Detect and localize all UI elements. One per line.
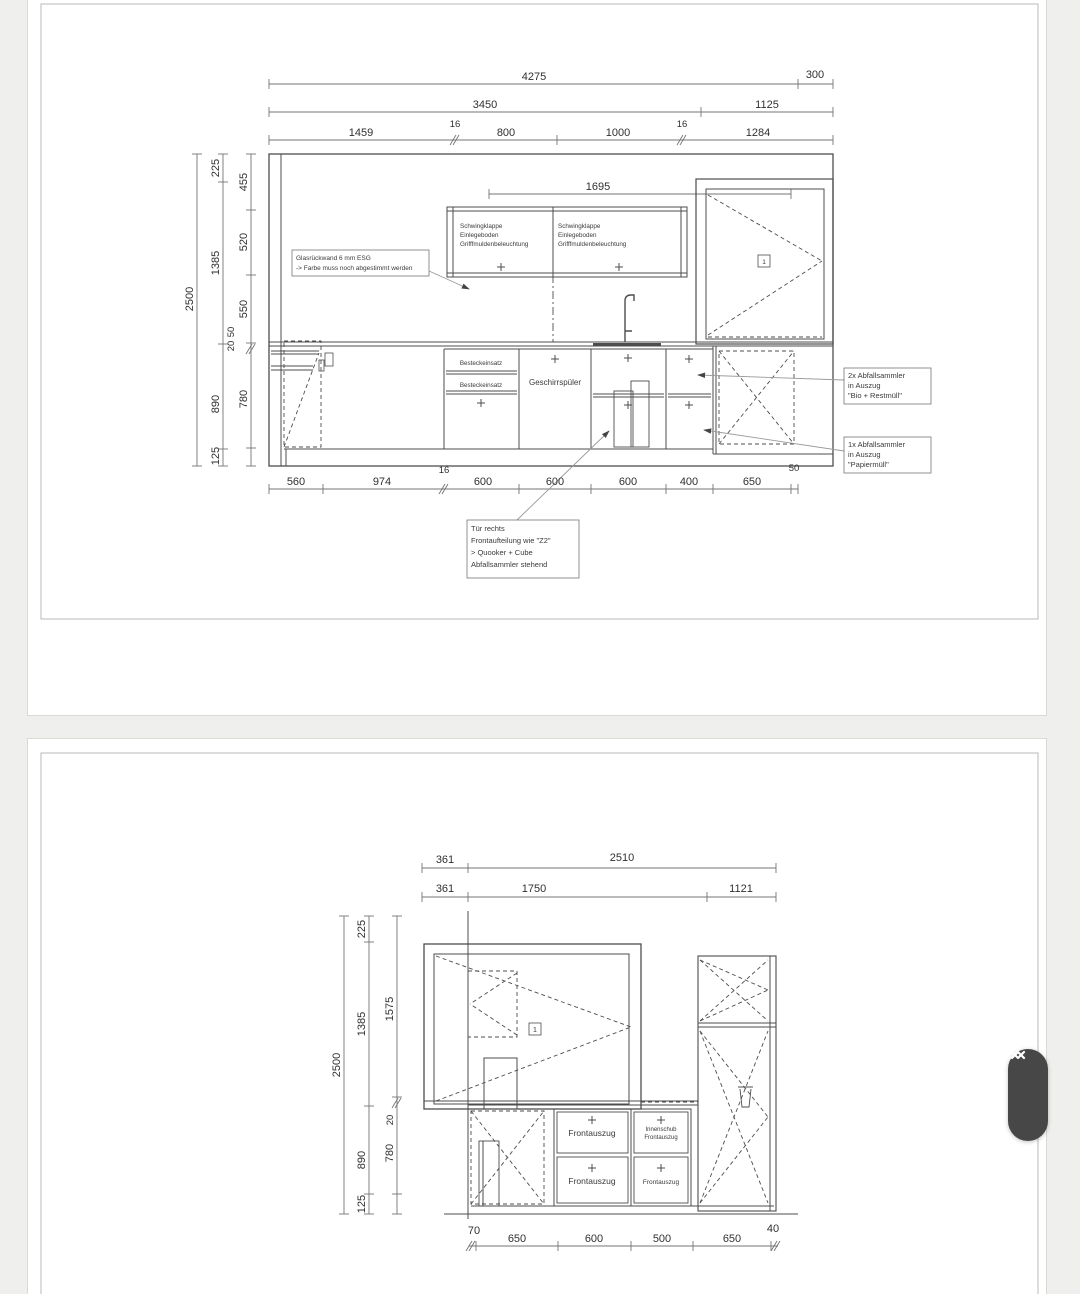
- scroll-down-button[interactable]: [1015, 1100, 1041, 1118]
- dim-inner: 780: [238, 390, 250, 408]
- paper-waste-note-line: in Auszug: [848, 450, 881, 459]
- dim-upper: 1575: [384, 997, 396, 1021]
- dim-gap: 16: [450, 119, 461, 130]
- dim-base: 890: [356, 1151, 368, 1169]
- dim-total-width: 4275: [522, 71, 546, 83]
- dim-mid: 1385: [210, 251, 222, 275]
- door-note-line: Frontaufteilung wie "Z2": [471, 536, 551, 545]
- waste-note-line: 2x Abfallsammler: [848, 371, 906, 380]
- front-pullout-label: Frontauszug: [568, 1128, 616, 1138]
- dim-bottom: 650: [508, 1233, 526, 1245]
- wall-cabinet-left-label: Schwingklappe: [460, 223, 503, 230]
- dim-bottom: 974: [373, 476, 391, 488]
- dim-bottom: 600: [474, 476, 492, 488]
- dim-base: 890: [210, 395, 222, 413]
- page2-frame: [41, 753, 1038, 1294]
- page1-elevation-lines: [269, 154, 833, 466]
- wall-cabinet-right-label: Einlegeboden: [558, 232, 597, 239]
- front-pullout-label: Frontauszug: [568, 1176, 616, 1186]
- glass-note-line: -> Farbe muss noch abgestimmt werden: [296, 265, 413, 272]
- page2-drawing-svg: 361 2510 361 1750 1121 2500 225 1385 890…: [28, 739, 1048, 1294]
- dim-soffit: 225: [210, 159, 222, 177]
- dim-bottom: 650: [723, 1233, 741, 1245]
- dim-front: 780: [384, 1144, 396, 1162]
- cutlery-insert-label: Besteckeinsatz: [460, 382, 502, 389]
- wall-cabinet-right-label: Schwingklappe: [558, 223, 601, 230]
- dim-seg: 1000: [606, 127, 630, 139]
- scroll-up-button[interactable]: [1015, 1072, 1041, 1090]
- page1-dimension-lines: [192, 79, 833, 494]
- dim-bottom-end: 40: [767, 1223, 779, 1235]
- front-pullout-label: Frontauszug: [643, 1179, 680, 1186]
- dim-top: 361: [436, 883, 454, 895]
- dim-inner: 550: [238, 300, 250, 318]
- dim-gap: 20: [385, 1115, 396, 1126]
- dim-bottom: 650: [743, 476, 761, 488]
- wall-cabinet-left-label: Grifffmuldenbeleuchtung: [460, 241, 529, 248]
- dim-top: 1121: [729, 883, 753, 895]
- dim-gap: 20: [226, 341, 237, 352]
- inner-drawer-label: Innenschub: [645, 1127, 677, 1133]
- dim-bottom-end: 50: [789, 463, 800, 474]
- dim-wall-run: 1695: [586, 181, 610, 193]
- cutlery-insert-label: Besteckeinsatz: [460, 360, 502, 367]
- chevron-down-icon: [1008, 1049, 1028, 1061]
- document-page-1: 4275 300 3450 1125 1459 16 800 1000 16 1…: [27, 0, 1047, 716]
- page2-dashed-lines: [436, 956, 768, 1204]
- window-marker: 1: [533, 1027, 537, 1034]
- dim-seg: 800: [497, 127, 515, 139]
- dim-inner: 455: [238, 173, 250, 191]
- glass-note-line: Glasrückwand 6 mm ESG: [296, 255, 371, 262]
- dim-bottom: 600: [619, 476, 637, 488]
- dim-bottom-gap: 16: [439, 465, 450, 476]
- dim-plinth: 125: [210, 447, 222, 465]
- window-marker: 1: [762, 259, 766, 266]
- dim-plinth: 125: [356, 1195, 368, 1213]
- wall-cabinet-left-label: Einlegeboden: [460, 232, 499, 239]
- waste-note-line: in Auszug: [848, 381, 881, 390]
- inner-drawer-label: Frontauszug: [644, 1135, 677, 1141]
- dim-bottom: 560: [287, 476, 305, 488]
- dim-gap: 16: [677, 119, 688, 130]
- dim-top: 1750: [522, 883, 546, 895]
- page2-dimension-lines: [339, 863, 780, 1251]
- dim-seg: 1284: [746, 127, 770, 139]
- waste-note-line: "Bio + Restmüll": [848, 391, 902, 400]
- dim-bottom: 600: [546, 476, 564, 488]
- dim-height-total: 2500: [331, 1053, 343, 1077]
- dim-tall-unit: 1125: [755, 99, 779, 111]
- page1-drawing-svg: 4275 300 3450 1125 1459 16 800 1000 16 1…: [28, 0, 1048, 715]
- door-note-line: > Quooker + Cube: [471, 548, 533, 557]
- scroll-widget: [1008, 1049, 1048, 1141]
- door-note-line: Abfallsammler stehend: [471, 560, 547, 569]
- dim-run: 3450: [473, 99, 497, 111]
- door-note-line: Tür rechts: [471, 524, 505, 533]
- dim-right-return: 300: [806, 69, 824, 81]
- dishwasher-label: Geschirrspüler: [529, 378, 581, 387]
- paper-waste-note-line: "Papiermüll": [848, 460, 889, 469]
- dim-bottom: 500: [653, 1233, 671, 1245]
- page1-annotation-boxes: [292, 250, 931, 578]
- dim-height-total: 2500: [184, 287, 196, 311]
- dim-bottom: 600: [585, 1233, 603, 1245]
- dim-top: 361: [436, 854, 454, 866]
- page1-dashed-lines: [284, 195, 822, 447]
- dim-counter: 50: [226, 327, 237, 338]
- dim-seg: 1459: [349, 127, 373, 139]
- page2-elevation-lines: [424, 911, 798, 1219]
- dim-bottom: 400: [680, 476, 698, 488]
- document-page-2: 361 2510 361 1750 1121 2500 225 1385 890…: [27, 738, 1047, 1294]
- dim-top-total: 2510: [610, 852, 634, 864]
- wall-cabinet-right-label: Grifffmuldenbeleuchtung: [558, 241, 627, 248]
- paper-waste-note-line: 1x Abfallsammler: [848, 440, 906, 449]
- dim-mid: 1385: [356, 1012, 368, 1036]
- dim-soffit: 225: [356, 920, 368, 938]
- dim-inner: 520: [238, 233, 250, 251]
- document-viewer: 4275 300 3450 1125 1459 16 800 1000 16 1…: [0, 0, 1080, 1294]
- dim-bottom-start: 70: [468, 1225, 480, 1237]
